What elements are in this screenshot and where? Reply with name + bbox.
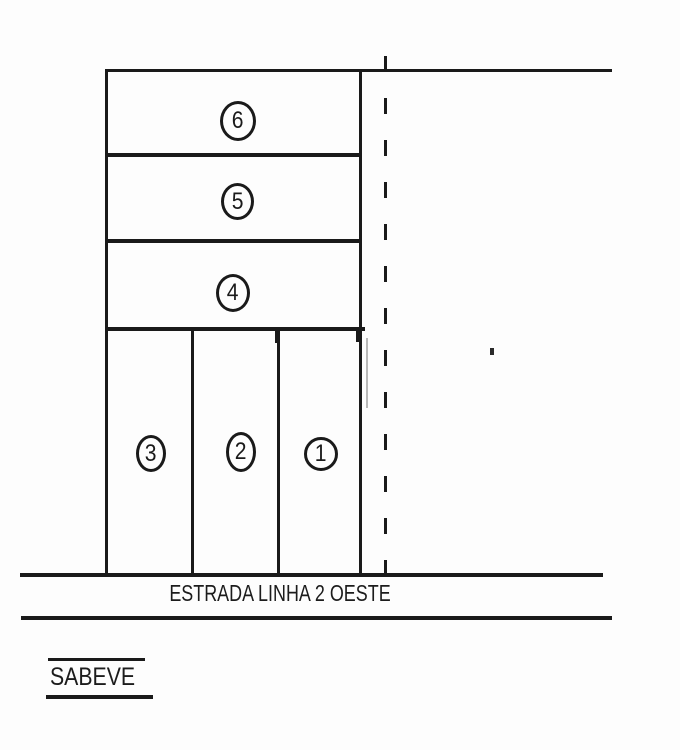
divider-tick-mark	[275, 331, 280, 343]
lot-2-marker: 2	[226, 432, 256, 472]
lot-divider-5-4	[105, 239, 362, 243]
lot-5-number: 5	[232, 190, 244, 214]
lot-divider-2-1	[277, 331, 280, 576]
road-south-line	[21, 616, 612, 620]
scan-dot	[490, 348, 494, 355]
road-name-label: ESTRADA LINHA 2 OESTE	[163, 580, 397, 607]
land-subdivision-sketch: ESTRADA LINHA 2 OESTE 6 5 4 3 2 1 SABEVE	[0, 0, 680, 750]
divider-tick-mark	[356, 328, 362, 342]
lot-1-number: 1	[315, 442, 327, 466]
lot-divider-4-lower	[105, 327, 365, 331]
lot-3-marker: 3	[136, 435, 166, 472]
dashed-boundary-line	[384, 56, 387, 573]
lot-4-number: 4	[227, 281, 239, 305]
lot-divider-6-5	[105, 153, 362, 157]
lot-6-marker: 6	[220, 101, 256, 141]
scan-smudge-line	[366, 338, 368, 408]
lot-1-marker: 1	[304, 437, 338, 471]
signature-underline	[46, 695, 153, 699]
lot-block-west-edge	[105, 69, 108, 577]
lot-6-number: 6	[232, 109, 244, 133]
lot-3-number: 3	[145, 442, 157, 466]
signature-overline	[48, 658, 145, 661]
lot-4-marker: 4	[216, 274, 250, 312]
lot-2-number: 2	[235, 440, 247, 464]
lot-5-marker: 5	[221, 183, 254, 220]
lot-block-east-edge	[359, 69, 362, 577]
lot-divider-3-2	[191, 331, 194, 576]
signature-label: SABEVE	[50, 663, 135, 692]
road-north-line	[20, 573, 603, 577]
